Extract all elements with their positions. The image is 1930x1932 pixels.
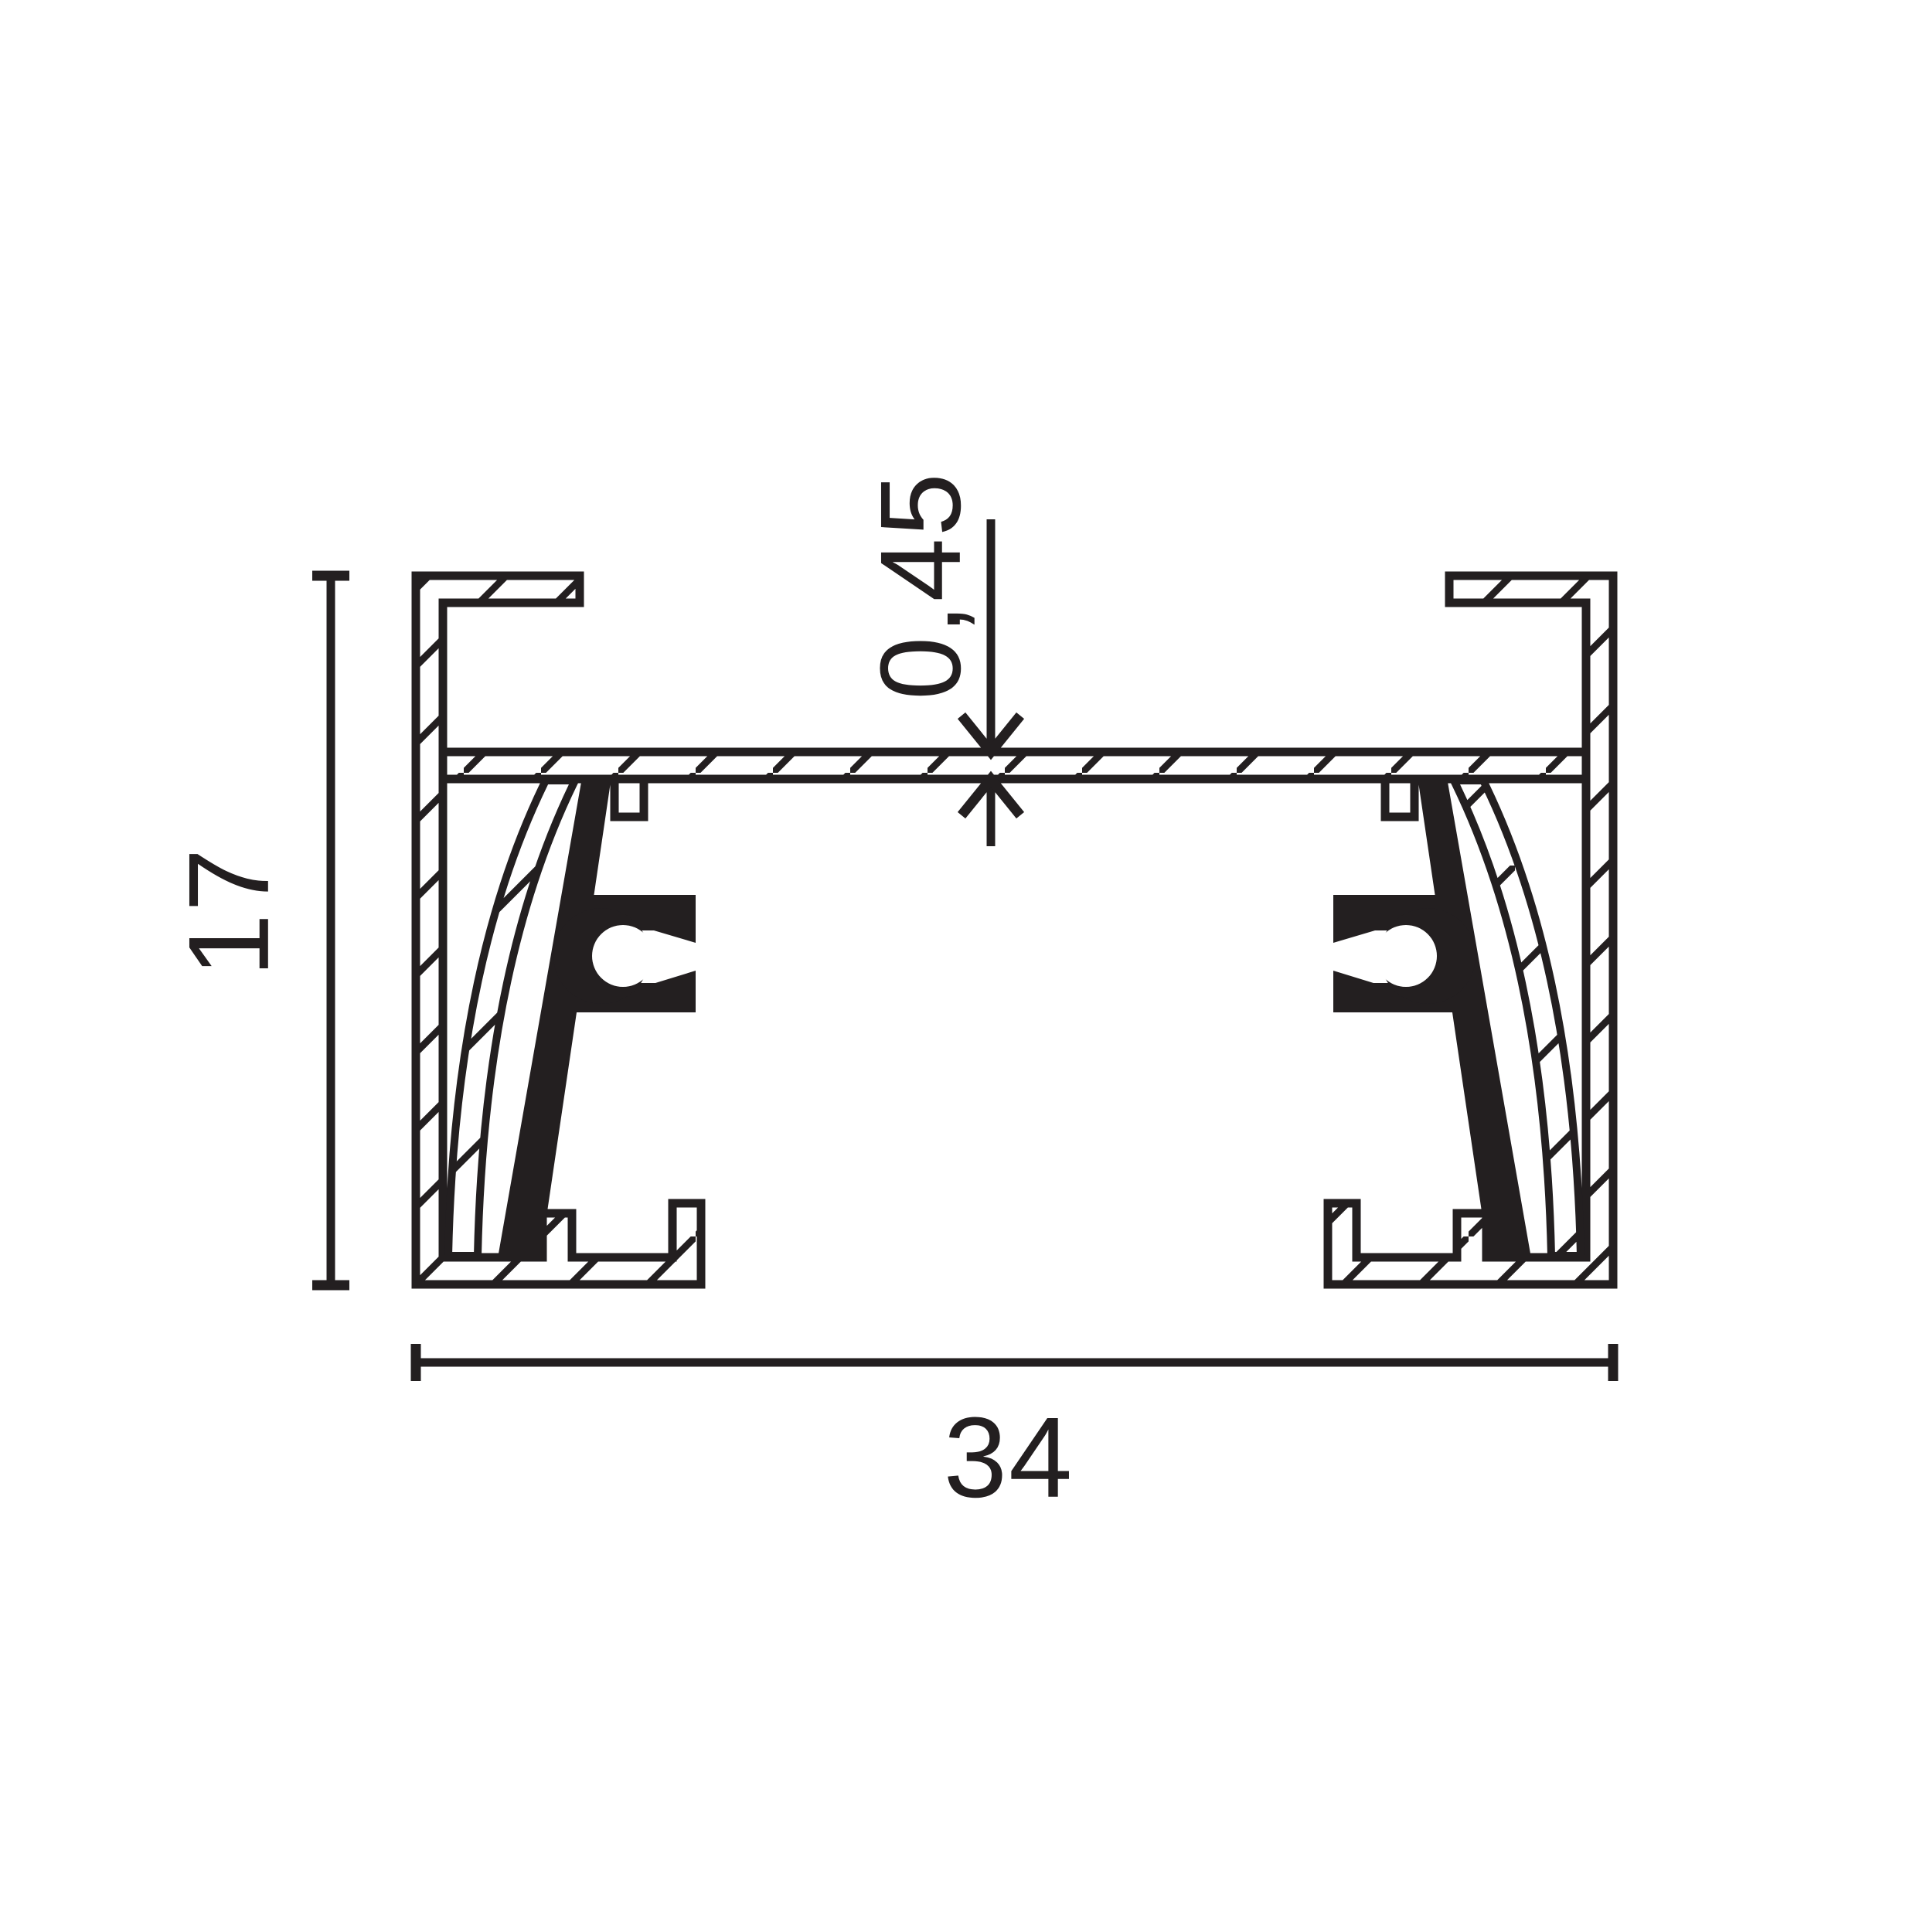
profile-tab-left xyxy=(614,779,644,817)
profile-tab-right xyxy=(1385,779,1414,817)
dimension-thickness-label: 0,45 xyxy=(857,471,985,700)
left-conductor-wire xyxy=(592,925,654,987)
drawing-canvas: 17 34 0,45 xyxy=(0,0,1930,1932)
dimension-width-label: 34 xyxy=(944,1394,1074,1522)
right-conductor-wire xyxy=(1375,925,1437,987)
profile-cross-section-drawing: 17 34 0,45 xyxy=(0,0,1930,1932)
dimension-height-label: 17 xyxy=(165,847,293,978)
